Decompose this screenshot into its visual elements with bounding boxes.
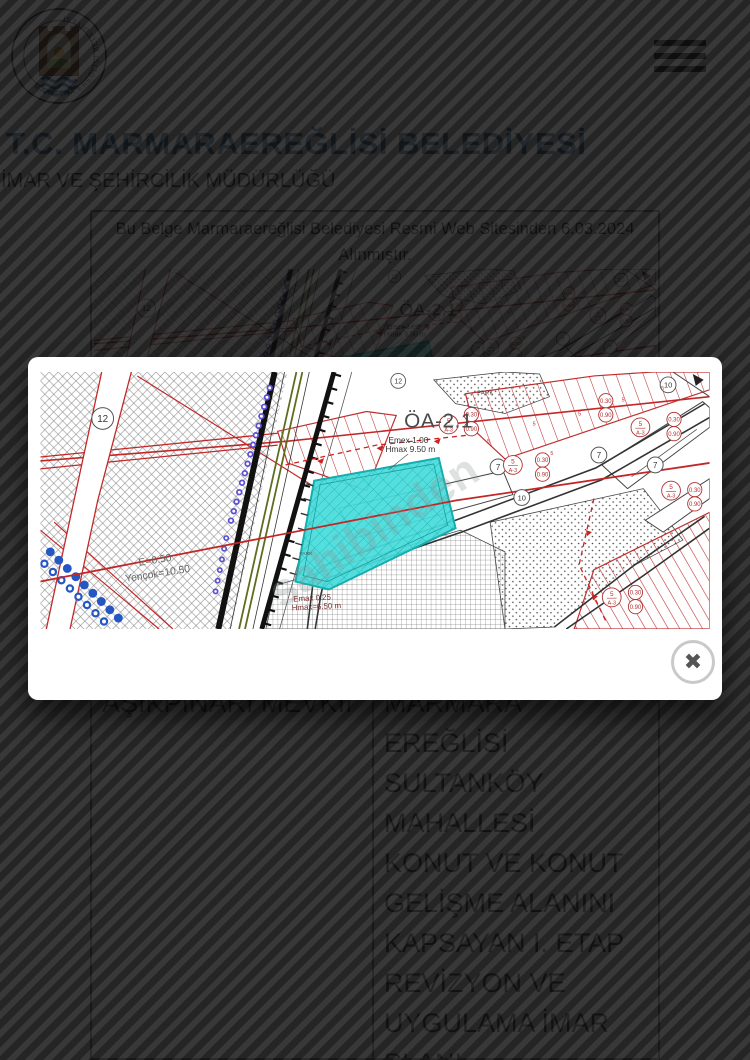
image-modal: ✖ bbox=[28, 357, 722, 700]
close-icon[interactable]: ✖ bbox=[671, 640, 715, 684]
zoning-map-enlarged bbox=[40, 372, 710, 629]
